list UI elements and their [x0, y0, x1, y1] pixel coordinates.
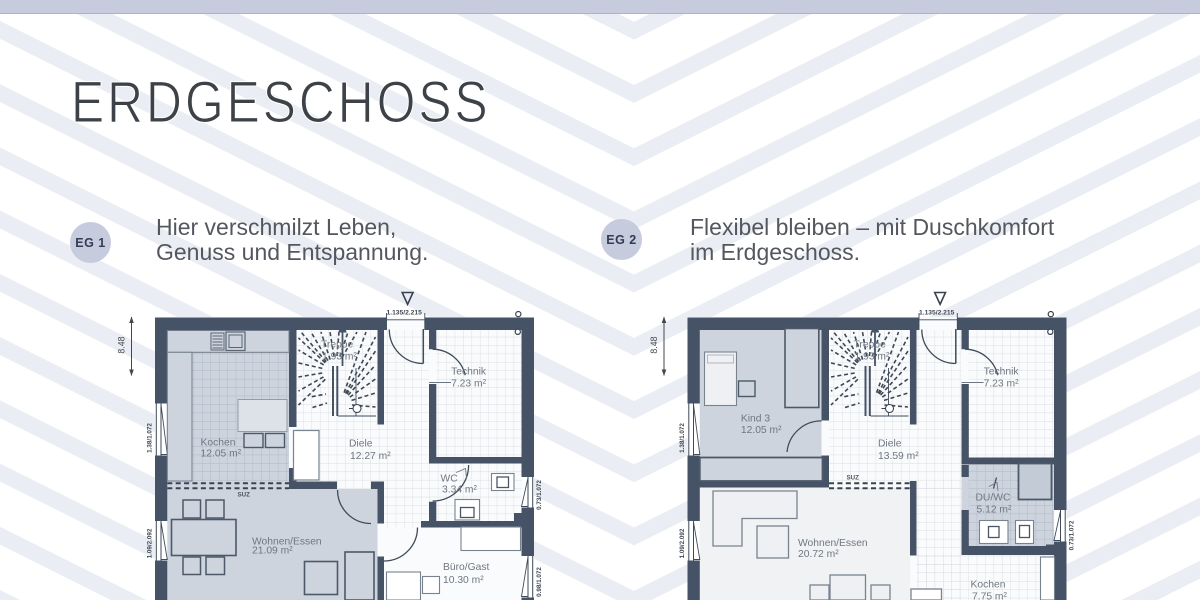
svg-text:Kochen: Kochen [201, 438, 236, 449]
svg-text:1.09/2.092: 1.09/2.092 [679, 528, 686, 558]
svg-text:Büro/Gast: Büro/Gast [443, 562, 489, 573]
svg-text:12.27 m²: 12.27 m² [350, 451, 391, 462]
svg-text:Diele: Diele [878, 439, 902, 450]
svg-text:Kind 3: Kind 3 [741, 414, 770, 425]
svg-text:Treppe: Treppe [321, 340, 354, 351]
svg-text:12.05 m²: 12.05 m² [741, 425, 782, 436]
svg-text:12.05 m²: 12.05 m² [201, 449, 242, 460]
svg-text:Kochen: Kochen [971, 580, 1006, 591]
svg-text:1.93 m²: 1.93 m² [855, 352, 890, 363]
svg-text:5.12 m²: 5.12 m² [977, 505, 1012, 516]
svg-text:10.30 m²: 10.30 m² [443, 575, 484, 586]
svg-text:Technik: Technik [451, 367, 487, 378]
svg-text:0.73/1.072: 0.73/1.072 [536, 480, 543, 510]
svg-text:8.48: 8.48 [117, 336, 127, 353]
svg-text:8.48: 8.48 [649, 336, 659, 353]
svg-text:3.34 m²: 3.34 m² [442, 485, 477, 496]
svg-text:1.135/2.215: 1.135/2.215 [387, 310, 423, 317]
svg-text:1.09/2.092: 1.09/2.092 [147, 528, 154, 558]
svg-text:DU/WC: DU/WC [976, 493, 1011, 504]
svg-text:21.09 m²: 21.09 m² [252, 546, 293, 557]
svg-text:7.23 m²: 7.23 m² [984, 379, 1019, 390]
svg-text:0.73/1.072: 0.73/1.072 [1069, 520, 1076, 550]
svg-text:1.135/2.215: 1.135/2.215 [919, 310, 955, 317]
svg-text:Treppe: Treppe [854, 340, 887, 351]
svg-text:0.98/1.072: 0.98/1.072 [536, 567, 543, 597]
svg-text:20.72 m²: 20.72 m² [798, 549, 839, 560]
svg-text:1.38/1.072: 1.38/1.072 [679, 423, 686, 453]
svg-text:Wohnen/Essen: Wohnen/Essen [798, 538, 868, 549]
svg-text:13.59 m²: 13.59 m² [878, 451, 919, 462]
svg-text:Diele: Diele [349, 439, 373, 450]
svg-text:7.75 m²: 7.75 m² [972, 592, 1007, 600]
svg-text:7.23 m²: 7.23 m² [451, 379, 486, 390]
svg-text:SUZ: SUZ [847, 475, 860, 482]
svg-text:SUZ: SUZ [238, 492, 251, 499]
svg-text:Technik: Technik [984, 367, 1020, 378]
svg-text:1.93 m²: 1.93 m² [322, 352, 357, 363]
svg-text:1.38/1.072: 1.38/1.072 [147, 423, 154, 453]
svg-text:WC: WC [441, 474, 459, 485]
